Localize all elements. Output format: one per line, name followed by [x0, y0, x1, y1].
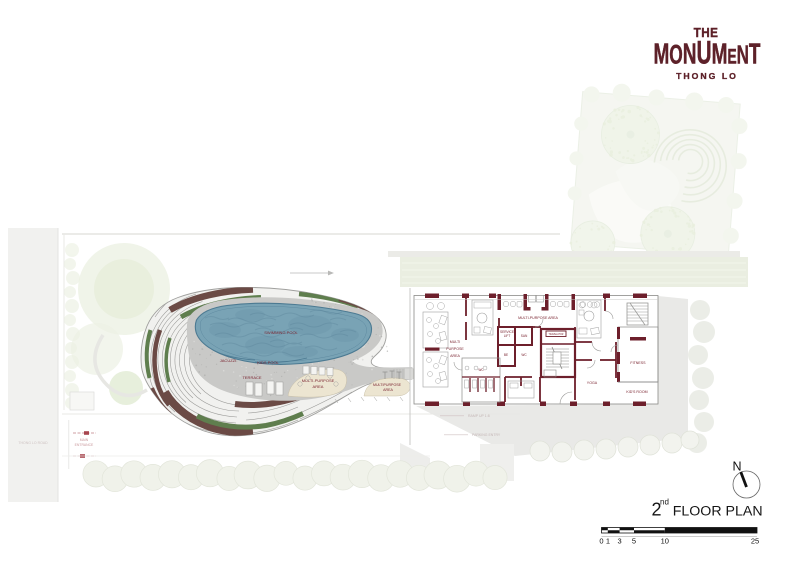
svg-text:ENTRANCE: ENTRANCE [75, 443, 94, 447]
svg-text:KID'S ROOM: KID'S ROOM [626, 390, 647, 394]
svg-text:MULTI-PURPOSE: MULTI-PURPOSE [302, 378, 335, 383]
svg-text:SAN: SAN [521, 334, 528, 338]
svg-text:THONG LO ROAD: THONG LO ROAD [18, 441, 48, 445]
svg-text:MULTI-PURPOSE AREA: MULTI-PURPOSE AREA [518, 316, 558, 320]
svg-text:THONG LO: THONG LO [676, 71, 738, 81]
svg-text:TERRACE: TERRACE [242, 375, 261, 380]
svg-text:MULTI: MULTI [450, 340, 461, 344]
svg-text:MONUMENT: MONUMENT [653, 35, 760, 70]
svg-text:1: 1 [606, 537, 610, 546]
svg-text:FITNESS: FITNESS [630, 361, 646, 365]
svg-text:PARKING ENTRY: PARKING ENTRY [472, 433, 501, 437]
svg-text:5: 5 [632, 537, 636, 546]
svg-text:AREA: AREA [383, 388, 393, 392]
svg-text:YOGA: YOGA [587, 381, 598, 385]
svg-text:MULTIPURPOSE: MULTIPURPOSE [373, 383, 402, 387]
svg-text:WC: WC [521, 353, 527, 357]
svg-text:MAIN: MAIN [80, 438, 89, 442]
svg-text:SWIMMING POOL: SWIMMING POOL [264, 330, 298, 335]
svg-text:nd: nd [660, 498, 669, 507]
svg-text:AREA: AREA [450, 354, 460, 358]
svg-text:FLOOR PLAN: FLOOR PLAN [673, 504, 763, 520]
svg-text:TRAVELATOR: TRAVELATOR [549, 333, 564, 336]
svg-text:N: N [732, 460, 741, 474]
svg-text:WC: WC [478, 368, 484, 372]
svg-text:KIDS POOL: KIDS POOL [257, 360, 279, 365]
svg-text:BE: BE [504, 353, 508, 357]
svg-text:25: 25 [751, 537, 759, 546]
svg-text:10: 10 [661, 537, 669, 546]
svg-text:PURPOSE: PURPOSE [446, 347, 464, 351]
svg-text:RAMP UP 1:8: RAMP UP 1:8 [468, 414, 490, 418]
svg-text:0: 0 [599, 537, 603, 546]
svg-text:JACUZZI: JACUZZI [220, 358, 236, 363]
svg-text:AREA: AREA [313, 384, 324, 389]
svg-text:LIFT: LIFT [504, 334, 511, 338]
svg-text:3: 3 [618, 537, 622, 546]
